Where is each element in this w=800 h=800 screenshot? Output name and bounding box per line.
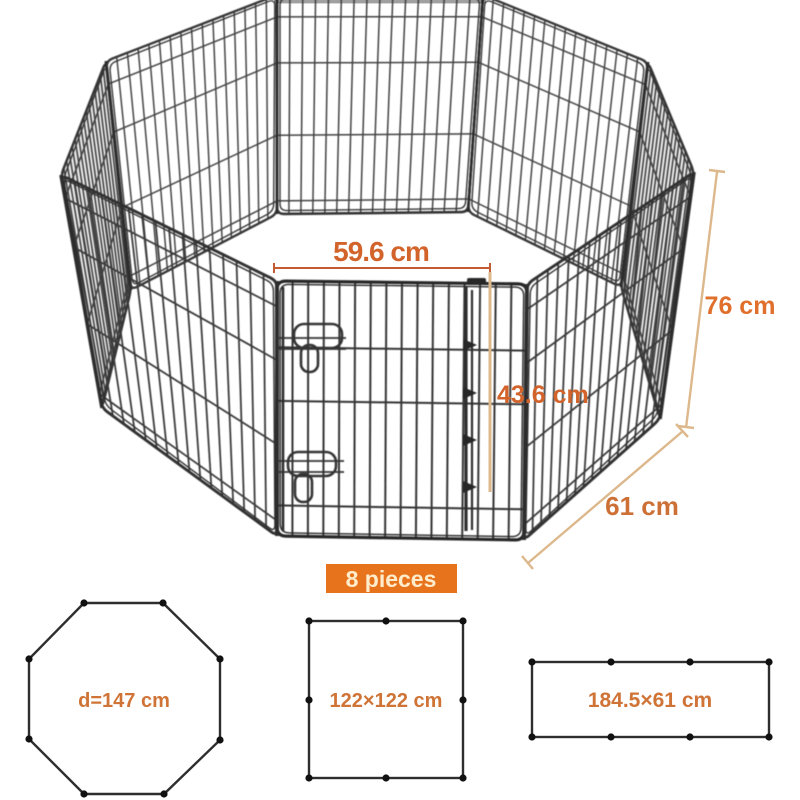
svg-text:59.6 cm: 59.6 cm <box>333 236 429 267</box>
svg-text:8 pieces: 8 pieces <box>346 566 437 592</box>
svg-text:43.6 cm: 43.6 cm <box>497 381 589 409</box>
svg-text:d=147 cm: d=147 cm <box>78 690 170 712</box>
svg-text:61 cm: 61 cm <box>605 491 679 521</box>
svg-text:76 cm: 76 cm <box>705 292 776 320</box>
svg-text:122×122 cm: 122×122 cm <box>330 690 443 712</box>
svg-text:184.5×61 cm: 184.5×61 cm <box>588 689 712 712</box>
